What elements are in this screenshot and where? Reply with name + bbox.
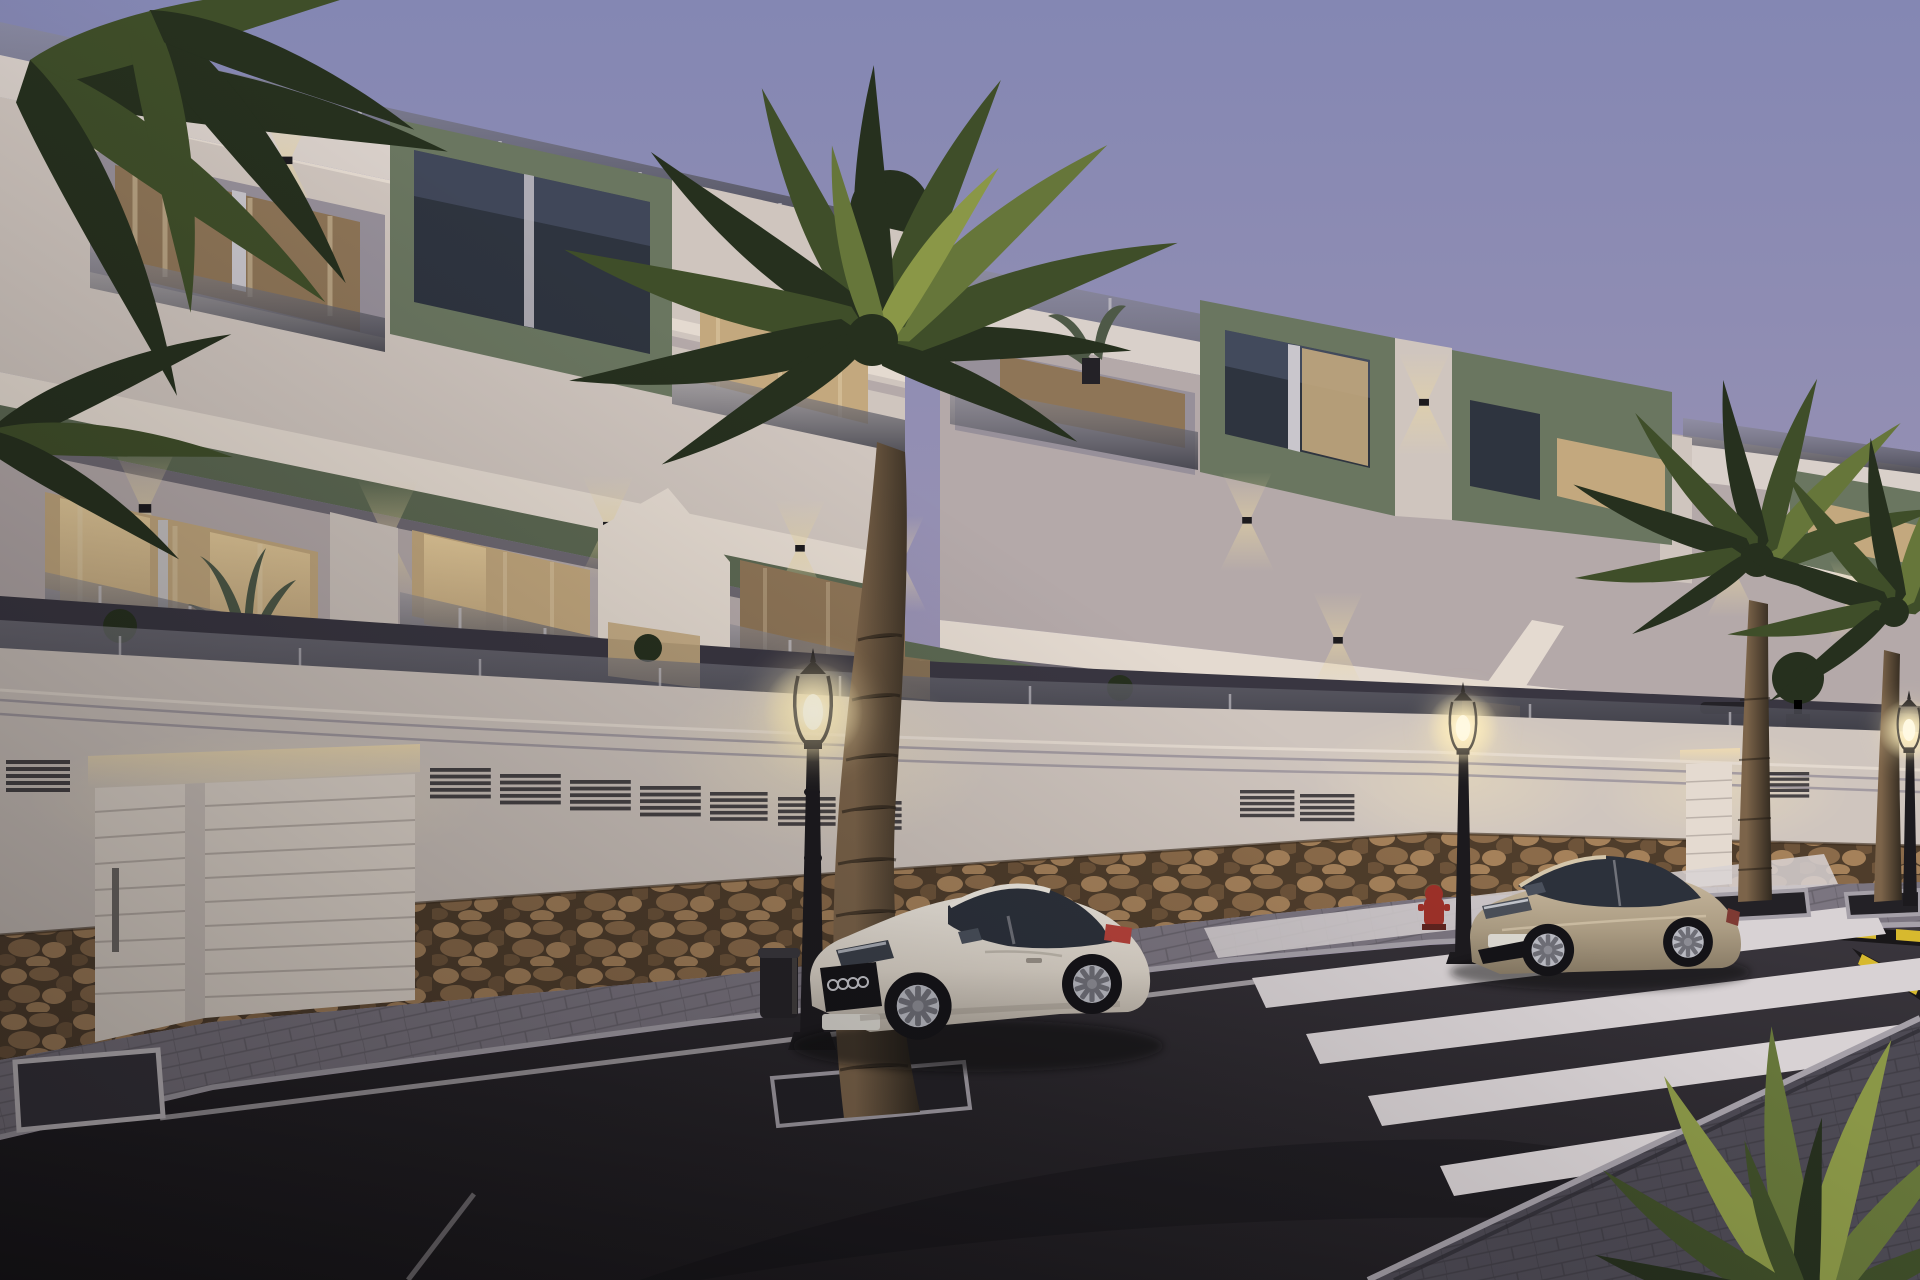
scene-canvas (0, 0, 1920, 1280)
dusk-apartment-street-scene (0, 0, 1920, 1280)
vignette-overlay (0, 0, 1920, 1280)
